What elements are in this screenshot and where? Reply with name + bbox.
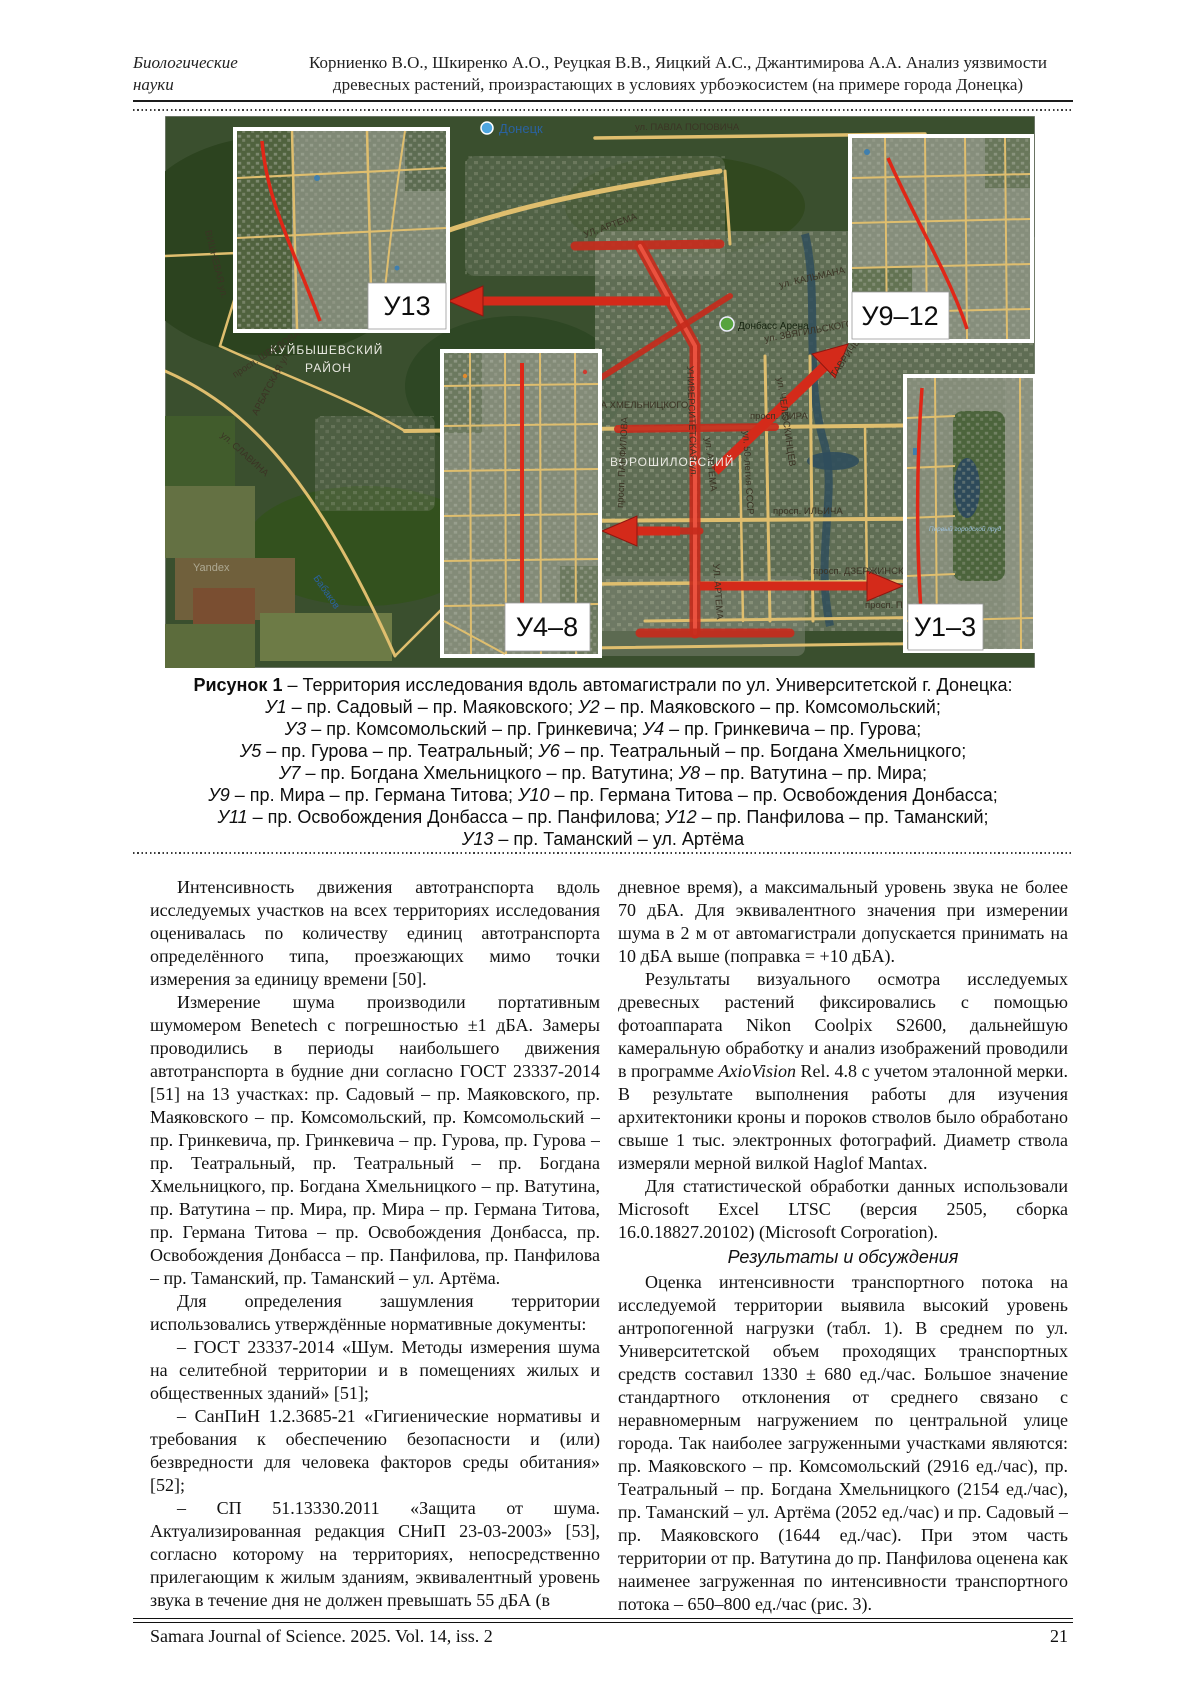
paragraph: – СП 51.13330.2011 «Защита от шума. Акту… — [150, 1497, 600, 1612]
map-label-pond: Первый городской пруд — [929, 525, 1002, 533]
map-label: просп. МИРА — [750, 411, 808, 422]
caption-line: У5 – пр. Гурова – пр. Театральный; У6 – … — [133, 740, 1073, 762]
inset-u1-3-label: У1–3 — [908, 604, 983, 650]
map-watermark: Yandex — [193, 562, 230, 574]
paragraph: Для определения зашумления территории ис… — [150, 1290, 600, 1336]
caption-line: У13 – пр. Таманский – ул. Артёма — [133, 828, 1073, 850]
svg-text:У4–8: У4–8 — [516, 612, 578, 642]
paragraph: Результаты визуального осмотра исследуем… — [618, 968, 1068, 1175]
paragraph: – СанПиН 1.2.3685-21 «Гигиенические норм… — [150, 1405, 600, 1497]
paragraph: Для статистической обработки данных испо… — [618, 1175, 1068, 1244]
map-label-donetsk: Донецк — [499, 121, 543, 136]
paragraph: Интенсивность движения автотранспорта вд… — [150, 876, 600, 991]
arena-marker-icon — [720, 317, 734, 331]
svg-text:У9–12: У9–12 — [861, 301, 938, 331]
satellite-map: Донецк ул. ПАВЛА ПОПОВИЧА УЛ. АРТЕМА ул.… — [165, 116, 1035, 668]
inset-u4-8-label: У4–8 — [505, 603, 590, 651]
paragraph: – ГОСТ 23337-2014 «Шум. Методы измерения… — [150, 1336, 600, 1405]
map-label-arena: Донбасс Арена — [738, 320, 809, 332]
paper-page: Биологические науки Корниенко В.О., Шкир… — [0, 0, 1200, 1697]
svg-text:У1–3: У1–3 — [914, 612, 976, 642]
caption-line: Рисунок 1 – Территория исследования вдол… — [133, 674, 1073, 696]
map-label: просп. ИЛЬИЧА — [773, 506, 843, 517]
journal-name: Samara Journal of Science. 2025. Vol. 14… — [150, 1624, 1008, 1648]
svg-text:У13: У13 — [383, 291, 430, 321]
column-left: Интенсивность движения автотранспорта вд… — [150, 876, 600, 1617]
dotted-rule-top — [133, 109, 1073, 111]
paragraph: Оценка интенсивности транспортного поток… — [618, 1271, 1068, 1616]
inset-u1-3: Первый городской пруд У1–3 — [905, 376, 1035, 651]
inset-u9-12: У9–12 — [850, 136, 1032, 341]
inset-u13: У13 — [235, 129, 448, 331]
section-label: Биологические науки — [133, 52, 283, 96]
inset-u4-8: У4–8 — [442, 351, 600, 656]
caption-line: У11 – пр. Освобождения Донбасса – пр. Па… — [133, 806, 1073, 828]
inset-u13-label: У13 — [368, 283, 446, 329]
body-columns: Интенсивность движения автотранспорта вд… — [150, 876, 1068, 1617]
caption-line: У9 – пр. Мира – пр. Германа Титова; У10 … — [133, 784, 1073, 806]
figure-caption: Рисунок 1 – Территория исследования вдол… — [133, 674, 1073, 850]
section-heading: Результаты и обсуждения — [618, 1246, 1068, 1269]
footer-rule — [133, 1618, 1073, 1623]
map-label-district: РАЙОН — [305, 360, 352, 375]
paragraph: дневное время), а максимальный уровень з… — [618, 876, 1068, 968]
city-marker-icon — [481, 122, 493, 134]
inset-u9-12-label: У9–12 — [852, 292, 949, 339]
running-title-line1: Корниенко В.О., Шкиренко А.О., Реуцкая В… — [283, 52, 1073, 74]
section-line1: Биологические — [133, 52, 283, 74]
dotted-rule-caption — [133, 852, 1073, 854]
column-right: дневное время), а максимальный уровень з… — [618, 876, 1068, 1617]
paragraph: Измерение шума производили портативным ш… — [150, 991, 600, 1290]
page-header: Биологические науки Корниенко В.О., Шкир… — [133, 52, 1073, 96]
section-line2: науки — [133, 74, 283, 96]
figure-map: Донецк ул. ПАВЛА ПОПОВИЧА УЛ. АРТЕМА ул.… — [165, 116, 1035, 668]
page-number: 21 — [1008, 1624, 1068, 1648]
running-title: Корниенко В.О., Шкиренко А.О., Реуцкая В… — [283, 52, 1073, 96]
caption-line: У3 – пр. Комсомольский – пр. Гринкевича;… — [133, 718, 1073, 740]
header-rule — [133, 100, 1073, 102]
caption-line: У1 – пр. Садовый – пр. Маяковского; У2 –… — [133, 696, 1073, 718]
running-title-line2: древесных растений, произрастающих в усл… — [283, 74, 1073, 96]
page-footer: Samara Journal of Science. 2025. Vol. 14… — [150, 1624, 1068, 1648]
caption-line: У7 – пр. Богдана Хмельницкого – пр. Вату… — [133, 762, 1073, 784]
map-label: ул. ПАВЛА ПОПОВИЧА — [635, 122, 740, 133]
